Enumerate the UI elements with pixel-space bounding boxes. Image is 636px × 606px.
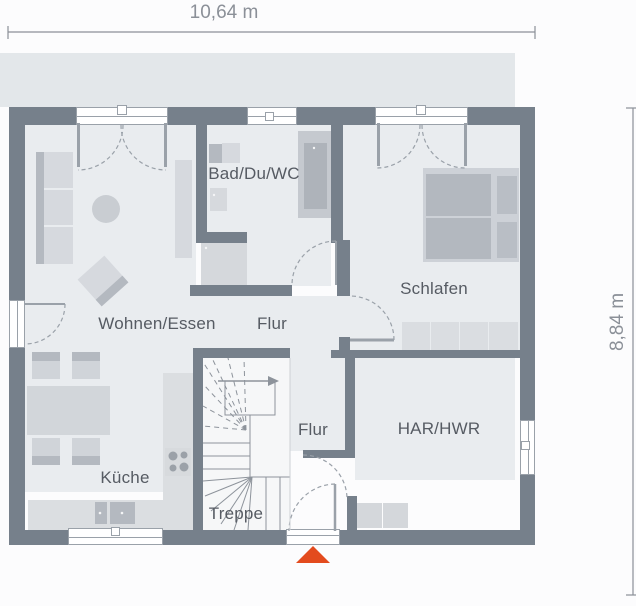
wall: [193, 348, 290, 358]
wall: [337, 240, 350, 296]
bed-pillow: [497, 176, 517, 214]
floor-plan: Wohnen/Essen Bad/Du/WC Schlafen Flur Flu…: [0, 0, 636, 606]
room-label-bath: Bad/Du/WC: [208, 164, 300, 184]
wardrobe-section: [402, 322, 430, 351]
wall: [345, 358, 355, 451]
wall: [520, 475, 535, 545]
terrace-door-left: [9, 300, 25, 348]
wall: [9, 107, 25, 300]
wall: [9, 348, 25, 545]
sofa-cushion: [44, 152, 73, 188]
wall: [168, 107, 247, 125]
utility-appliance: [357, 503, 382, 528]
sofa-cushion: [44, 227, 73, 264]
entrance-marker: [296, 546, 330, 563]
window-handle: [117, 105, 127, 115]
wall: [340, 530, 535, 545]
door-leaf: [77, 123, 80, 167]
room-label-bedroom: Schlafen: [400, 279, 468, 299]
window-handle: [521, 441, 530, 450]
wall: [193, 358, 203, 530]
terrace-area: [0, 53, 515, 107]
dining-chair: [72, 352, 100, 379]
stove: [165, 448, 191, 476]
sofa-backrest: [36, 152, 44, 264]
wall: [331, 125, 343, 243]
door-leaf: [164, 123, 167, 167]
frame-line: [376, 116, 467, 117]
wall: [190, 285, 292, 296]
toilet: [210, 188, 227, 211]
frame-line: [287, 535, 339, 536]
dimension-height-label: 8,84 m: [607, 293, 629, 351]
wall: [163, 530, 286, 545]
wardrobe-section: [431, 322, 459, 351]
kitchen-cabinet-front: [95, 502, 107, 524]
frame-line: [69, 537, 162, 538]
entrance-door-opening: [286, 529, 340, 545]
coffee-table-round: [92, 195, 120, 223]
frame-line: [17, 301, 18, 347]
window-handle: [265, 112, 274, 121]
room-label-hall-upper: Flur: [257, 314, 287, 334]
room-label-stairs: Treppe: [209, 504, 263, 524]
sofa-cushion: [44, 190, 73, 225]
room-label-living: Wohnen/Essen: [98, 314, 215, 334]
frame-line: [77, 116, 167, 117]
bed-mattress: [426, 174, 491, 216]
room-label-kitchen: Küche: [100, 468, 149, 488]
wall: [297, 107, 375, 125]
room-label-hall-lower: Flur: [298, 420, 328, 440]
wall: [9, 530, 68, 545]
washbasin-counter: [222, 143, 240, 163]
dining-chair: [32, 438, 60, 465]
bed-mattress: [426, 218, 491, 259]
wall: [347, 496, 357, 533]
wall: [196, 232, 247, 243]
sideboard: [175, 160, 192, 258]
wardrobe-section: [460, 322, 488, 351]
window-handle: [111, 527, 120, 536]
wardrobe-section: [489, 322, 518, 351]
dining-chair: [32, 352, 60, 379]
window-handle: [416, 105, 426, 115]
dining-chair: [72, 438, 100, 465]
hall-cabinet: [201, 243, 247, 287]
bed-pillow: [497, 222, 517, 258]
wall: [303, 450, 355, 458]
wall: [520, 107, 535, 420]
door-leaf: [464, 123, 467, 166]
washbasin: [209, 144, 222, 163]
door-leaf: [377, 123, 380, 166]
wall: [196, 125, 207, 232]
room-label-utility: HAR/HWR: [398, 419, 481, 439]
kitchen-cabinet-front: [110, 502, 135, 524]
dimension-width-label: 10,64 m: [190, 2, 259, 24]
utility-appliance: [383, 503, 408, 528]
shower-inner: [304, 143, 327, 209]
dining-table: [27, 386, 110, 435]
wall: [331, 350, 520, 358]
